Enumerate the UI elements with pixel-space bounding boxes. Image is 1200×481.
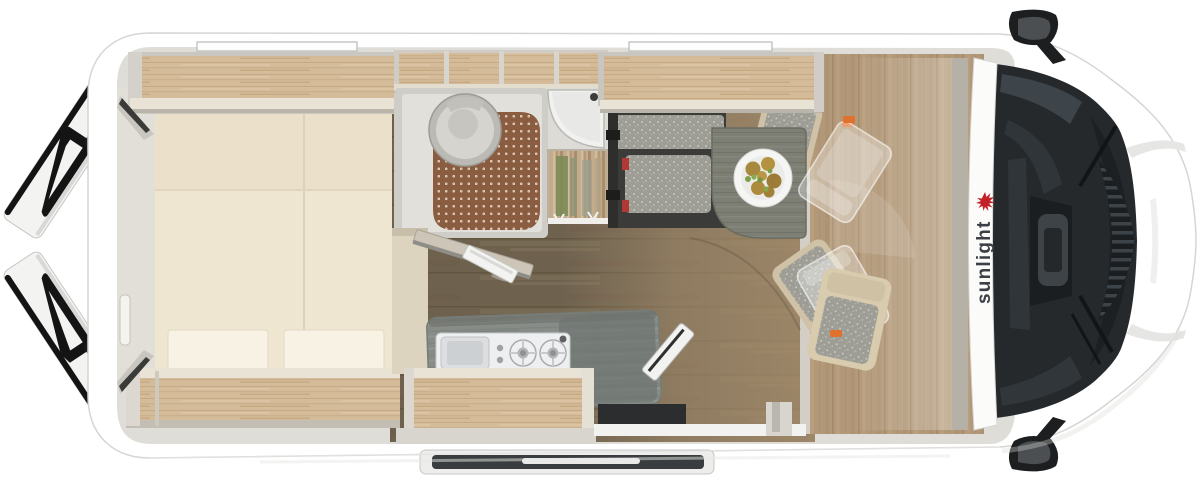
svg-text:sunlight: sunlight (974, 221, 995, 304)
